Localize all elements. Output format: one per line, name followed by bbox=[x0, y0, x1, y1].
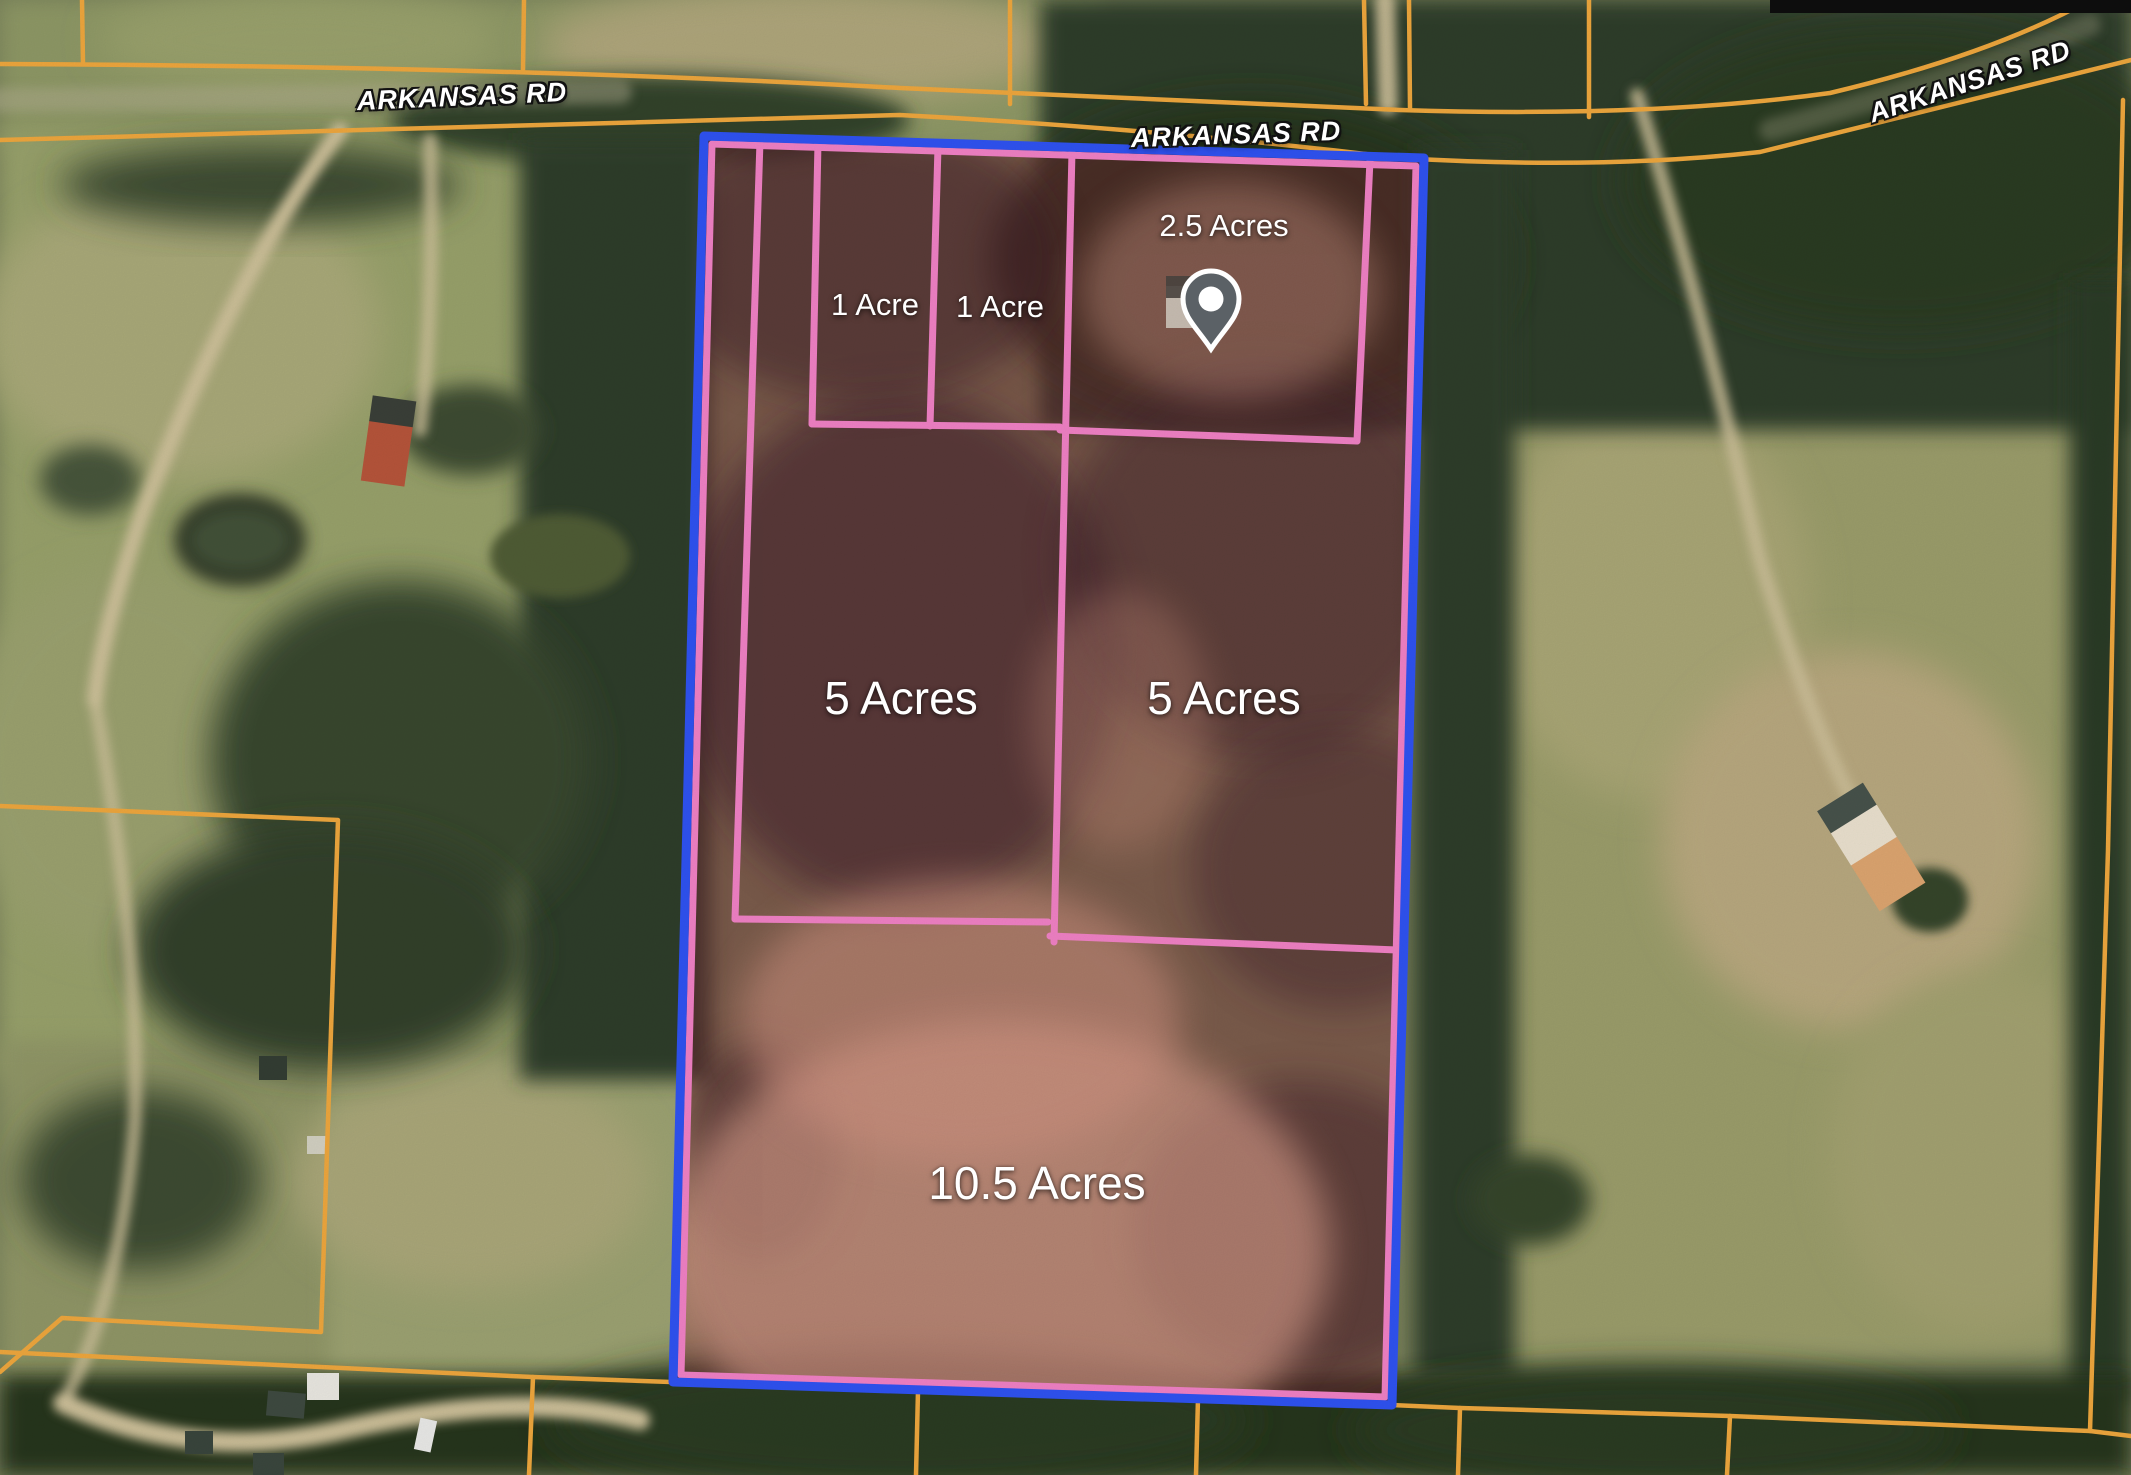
satellite-map-canvas bbox=[0, 0, 2131, 1475]
grain-overlay bbox=[0, 0, 2131, 1475]
top-black-strip bbox=[1770, 0, 2131, 13]
satellite-parcel-map: ARKANSAS RDARKANSAS RDARKANSAS RD1 Acre1… bbox=[0, 0, 2131, 1475]
